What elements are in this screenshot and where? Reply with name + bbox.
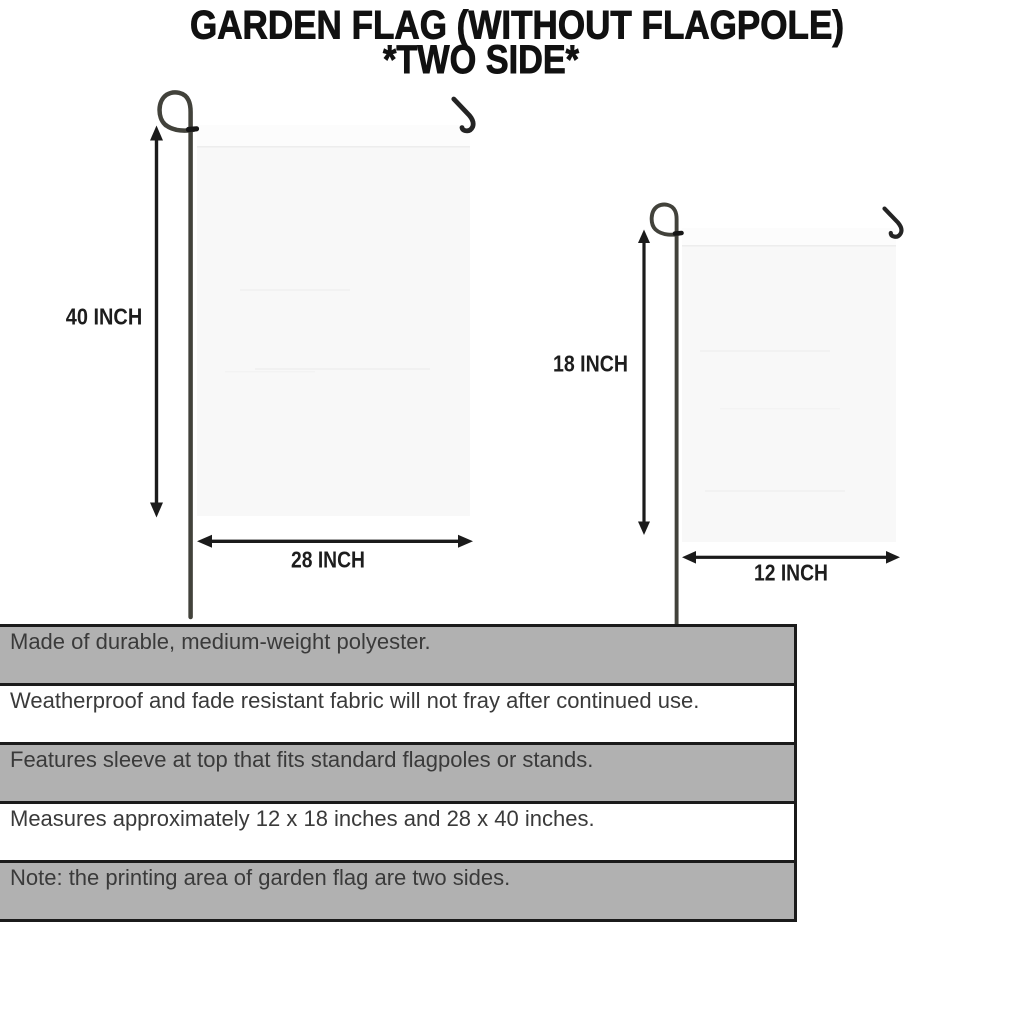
svg-text:40 INCH: 40 INCH xyxy=(66,304,143,330)
svg-text:28 INCH: 28 INCH xyxy=(291,547,365,573)
svg-text:12 INCH: 12 INCH xyxy=(754,560,828,586)
svg-text:*TWO SIDE*: *TWO SIDE* xyxy=(383,38,579,82)
svg-text:18 INCH: 18 INCH xyxy=(553,351,628,377)
